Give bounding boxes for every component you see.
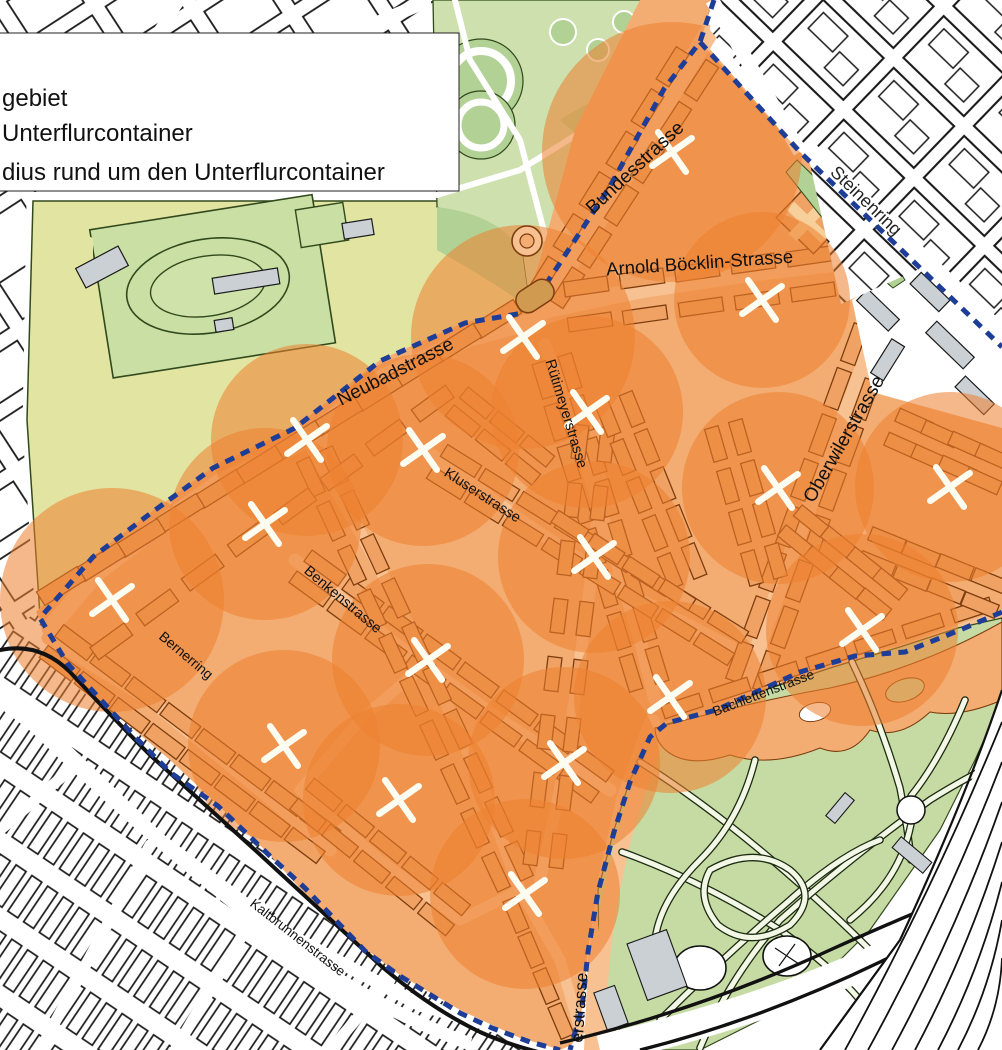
svg-text:dius rund um den Unterflurcont: dius rund um den Unterflurcontainer	[2, 159, 385, 186]
svg-text:Unterflurcontainer: Unterflurcontainer	[2, 120, 193, 147]
svg-text:gebiet: gebiet	[2, 85, 68, 112]
